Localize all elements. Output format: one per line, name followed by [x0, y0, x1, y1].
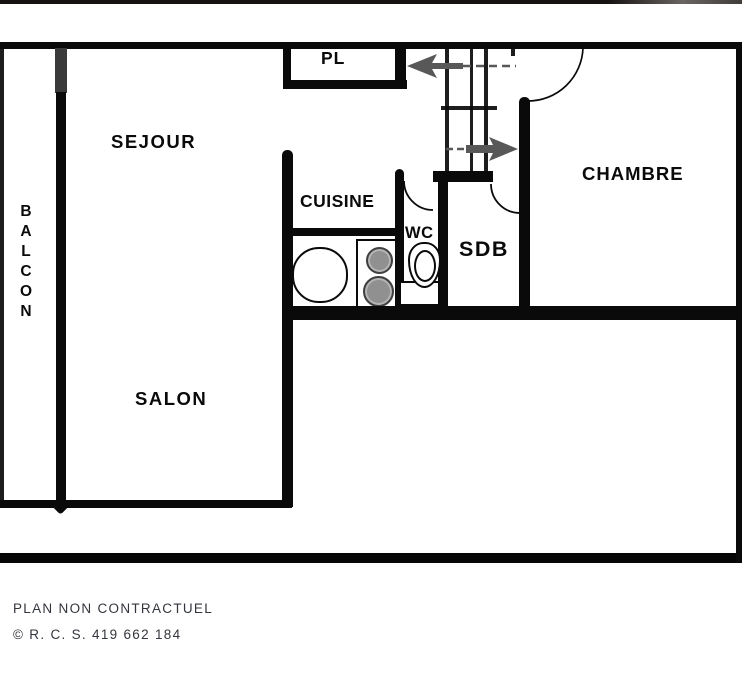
room-label-sejour: SEJOUR: [111, 133, 196, 152]
entry-cross-line: [441, 106, 497, 110]
floor-plan: SEJOUR B A L C O N CUISINE PL WC SDB CHA…: [0, 0, 742, 698]
kitchen-sink: [292, 247, 348, 303]
balcony-outer-edge: [0, 48, 4, 507]
chambre-door-arc: [528, 48, 583, 101]
wall-balcony-sejour: [56, 92, 66, 507]
room-label-salon: SALON: [135, 390, 207, 409]
room-label-sdb: SDB: [459, 239, 509, 261]
wc-door-arc: [404, 181, 433, 210]
scan-edge-top: [0, 0, 742, 4]
wall-salon-bottom: [0, 500, 292, 508]
door-hinge-tick: [511, 48, 515, 56]
toilet-bowl-inner: [414, 250, 436, 282]
room-label-balcon: B A L C O N: [15, 202, 37, 322]
door-arcs-and-arrows: [0, 0, 742, 698]
entry-arrow-right-icon: [466, 137, 518, 161]
room-label-wc: WC: [405, 225, 434, 242]
rcs-number-text: © R. C. S. 419 662 184: [13, 627, 181, 642]
wall-bottom-main: [283, 306, 742, 320]
closet-wall-bottom: [283, 80, 407, 89]
room-label-chambre: CHAMBRE: [582, 165, 684, 184]
scan-edge-bottom: [0, 553, 742, 563]
entry-line-1: [445, 48, 449, 172]
wall-right: [736, 42, 742, 563]
entry-arrow-left-icon: [407, 54, 463, 78]
room-label-pl: PL: [321, 50, 345, 68]
room-label-cuisine: CUISINE: [300, 193, 374, 211]
disclaimer-text: PLAN NON CONTRACTUEL: [13, 601, 213, 616]
cooktop-burner-top: [366, 247, 393, 274]
cooktop-burner-bottom: [363, 276, 394, 307]
kitchen-counter-edge: [290, 228, 397, 236]
wall-chambre-left: [519, 97, 530, 310]
balcony-window-wall: [55, 48, 67, 93]
wall-sejour-cuisine: [282, 150, 293, 507]
sdb-door-arc: [491, 184, 520, 213]
closet-wall-right: [395, 48, 406, 86]
entry-line-3: [484, 48, 488, 172]
entry-line-2: [470, 48, 474, 172]
wall-top: [0, 42, 742, 49]
